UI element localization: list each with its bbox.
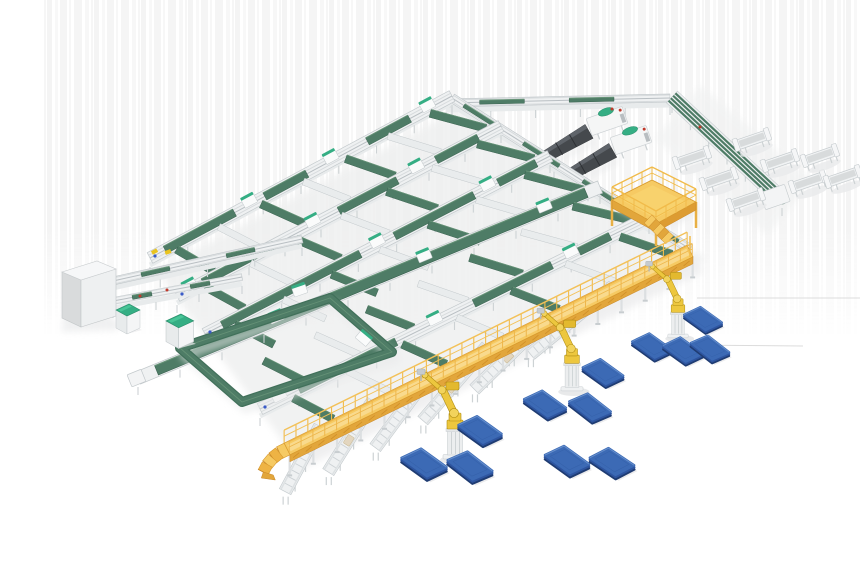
leg-foot xyxy=(619,311,624,313)
leg-foot xyxy=(690,276,695,278)
counterweight xyxy=(446,382,459,390)
gripper xyxy=(417,369,425,375)
red-marker xyxy=(611,108,614,111)
elbow-joint xyxy=(664,276,671,283)
leg-foot xyxy=(287,474,292,476)
blue-marker xyxy=(263,405,266,408)
counterweight xyxy=(670,272,681,279)
red-marker xyxy=(699,126,702,129)
shoulder-joint xyxy=(567,344,575,352)
leg-foot xyxy=(548,346,553,348)
pallet xyxy=(524,391,569,422)
facility-scene-svg xyxy=(0,0,860,580)
leg-foot xyxy=(477,381,482,383)
pallet xyxy=(458,416,504,448)
leg-foot xyxy=(572,335,577,337)
elbow-joint xyxy=(556,324,563,331)
cabinet-side xyxy=(62,272,81,327)
pallet xyxy=(583,359,626,389)
pallet xyxy=(402,449,450,483)
leg-foot xyxy=(335,451,340,453)
facility-3d-render xyxy=(0,0,860,580)
leg-foot xyxy=(429,405,434,407)
blue-marker xyxy=(208,330,211,333)
robot-base xyxy=(565,355,580,363)
pallet xyxy=(447,451,496,486)
shoulder-joint xyxy=(673,295,681,303)
pallet xyxy=(568,393,614,426)
red-marker xyxy=(166,289,169,292)
red-marker xyxy=(139,295,142,298)
pedestal-column xyxy=(565,365,579,387)
leg-foot xyxy=(595,323,600,325)
counterweight xyxy=(564,320,576,327)
leg-foot xyxy=(453,393,458,395)
gripper xyxy=(646,261,653,266)
robot-base xyxy=(671,305,685,313)
leg-foot xyxy=(643,300,648,302)
leg-foot xyxy=(382,428,387,430)
pallet xyxy=(545,446,592,479)
gripper xyxy=(537,308,544,313)
blue-marker xyxy=(153,254,156,257)
leg-foot xyxy=(406,416,411,418)
leg-foot xyxy=(358,439,363,441)
shoulder-joint xyxy=(449,408,458,417)
pallet xyxy=(590,447,638,482)
leg-foot xyxy=(524,358,529,360)
leg-foot xyxy=(500,370,505,372)
leg-foot xyxy=(311,463,316,465)
elbow-joint xyxy=(438,386,446,394)
blue-marker xyxy=(180,292,183,295)
